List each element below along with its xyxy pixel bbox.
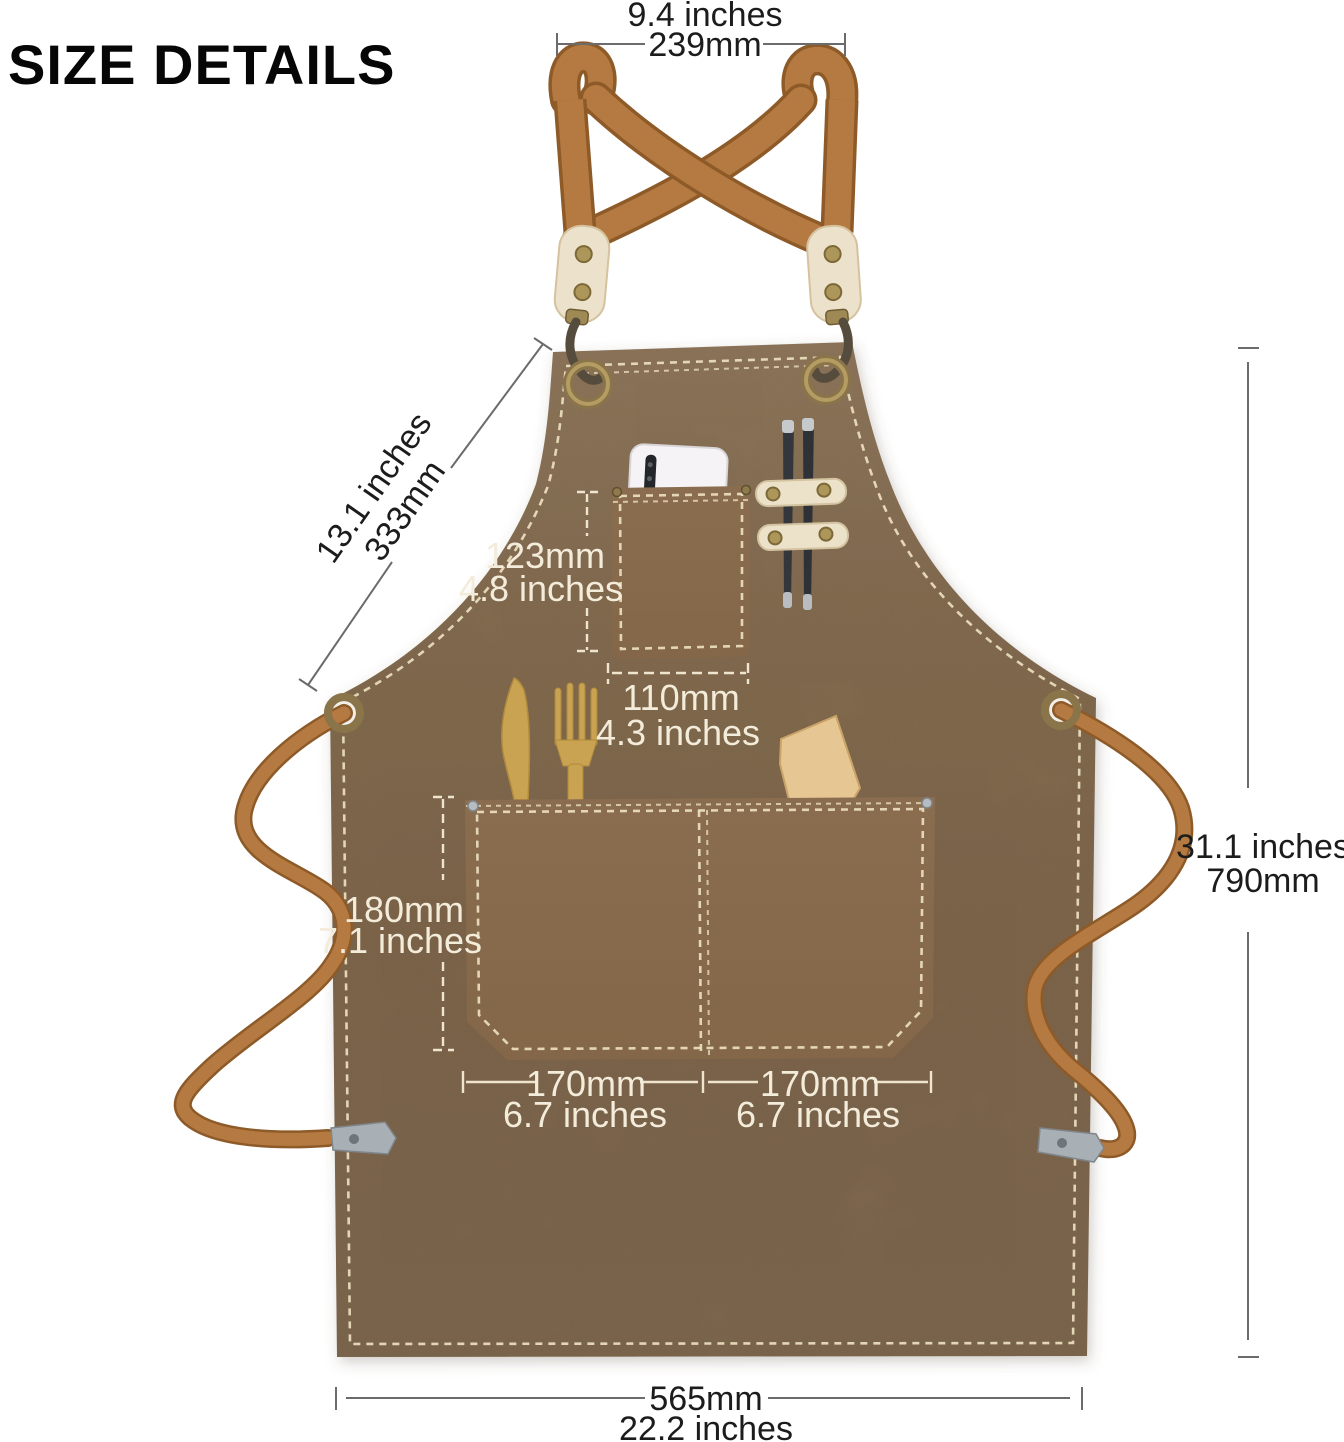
dim-neck-strap-mm: 239mm	[648, 26, 761, 64]
dim-front-pocket-right-inches: 6.7 inches	[736, 1094, 900, 1135]
rivet	[468, 801, 478, 811]
dim-apron-width-inches: 22.2 inches	[619, 1410, 793, 1442]
front-pocket	[465, 797, 935, 1060]
dim-apron-height-inches: 31.1 inches	[1176, 828, 1344, 866]
dim-apron-width: 565mm 22.2 inches	[336, 1380, 1082, 1442]
rivet	[824, 246, 841, 263]
left-leather-tab	[553, 224, 611, 324]
rivet	[575, 245, 592, 262]
dim-chest-pocket-height-inches: 4.8 inches	[459, 568, 623, 609]
page-title: SIZE DETAILS	[8, 33, 395, 96]
rivet	[766, 487, 779, 500]
apron-illustration: SIZE DETAILS 9.4 inches 239mm 13.1 inche…	[0, 0, 1344, 1442]
rivet	[768, 531, 781, 544]
size-details-diagram: SIZE DETAILS 9.4 inches 239mm 13.1 inche…	[0, 0, 1344, 1442]
dim-chest-pocket-width-inches: 4.3 inches	[596, 712, 760, 753]
dim-apron-height-mm: 790mm	[1206, 862, 1319, 900]
rivet	[1057, 1138, 1067, 1148]
dim-apron-height: 31.1 inches 790mm	[1176, 348, 1344, 1357]
rivet	[742, 486, 751, 495]
dim-front-pocket-left-inches: 6.7 inches	[503, 1094, 667, 1135]
rivet	[819, 527, 832, 540]
rivet	[574, 283, 591, 300]
rivet	[349, 1134, 359, 1144]
rivet	[825, 284, 842, 301]
dim-front-pocket-height-inches: 7.1 inches	[318, 920, 482, 961]
left-strap-metal-tip	[331, 1122, 396, 1154]
rivet	[613, 488, 622, 497]
rivet	[922, 798, 932, 808]
chest-pocket	[612, 486, 751, 660]
right-leather-tab	[806, 224, 863, 323]
shoulder-straps	[553, 57, 862, 324]
rivet	[817, 483, 830, 496]
